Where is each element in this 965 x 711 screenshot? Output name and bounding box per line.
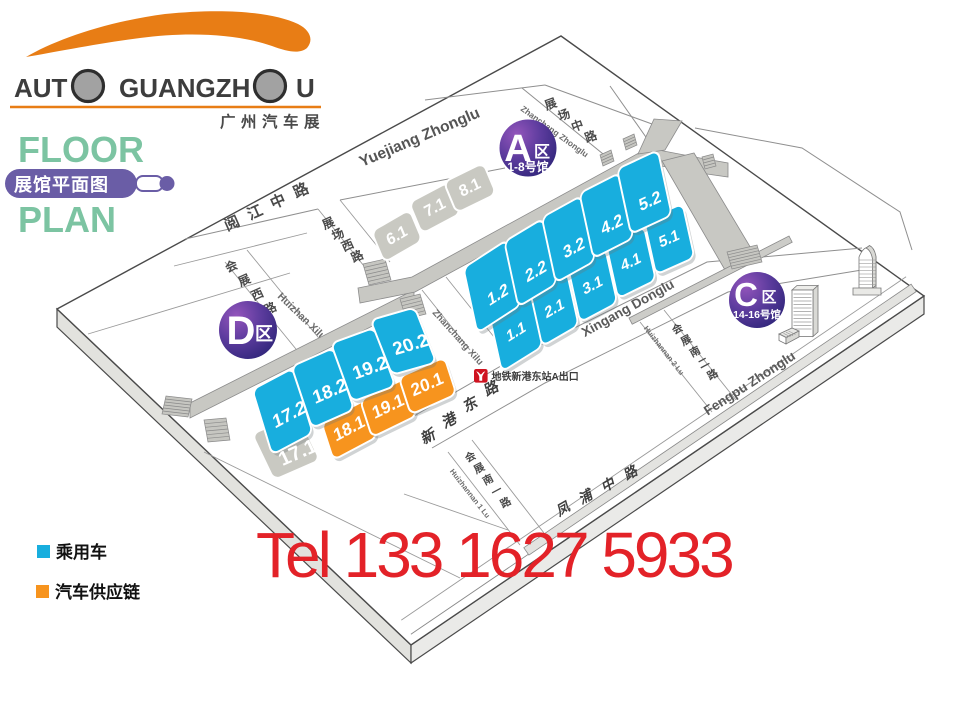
svg-text:区: 区 (761, 289, 776, 306)
svg-text:展馆平面图: 展馆平面图 (14, 174, 109, 195)
svg-text:区: 区 (534, 143, 550, 161)
svg-text:U: U (296, 73, 315, 103)
svg-text:GUANGZH: GUANGZH (119, 73, 250, 103)
svg-text:C: C (734, 276, 758, 313)
svg-text:1-8号馆: 1-8号馆 (507, 159, 548, 174)
svg-text:FLOOR: FLOOR (18, 129, 144, 170)
svg-text:乘用车: 乘用车 (55, 542, 107, 562)
svg-text:PLAN: PLAN (18, 199, 116, 240)
svg-text:汽车供应链: 汽车供应链 (55, 582, 141, 602)
svg-text:地铁新港东站A出口: 地铁新港东站A出口 (492, 370, 579, 383)
svg-text:广州汽车展: 广州汽车展 (220, 112, 325, 131)
svg-text:区: 区 (255, 324, 273, 344)
svg-text:D: D (227, 309, 256, 353)
svg-text:14-16号馆: 14-16号馆 (733, 308, 781, 321)
svg-text:Tel 133 1627 5933: Tel 133 1627 5933 (256, 519, 732, 591)
svg-text:AUT: AUT (14, 73, 68, 103)
